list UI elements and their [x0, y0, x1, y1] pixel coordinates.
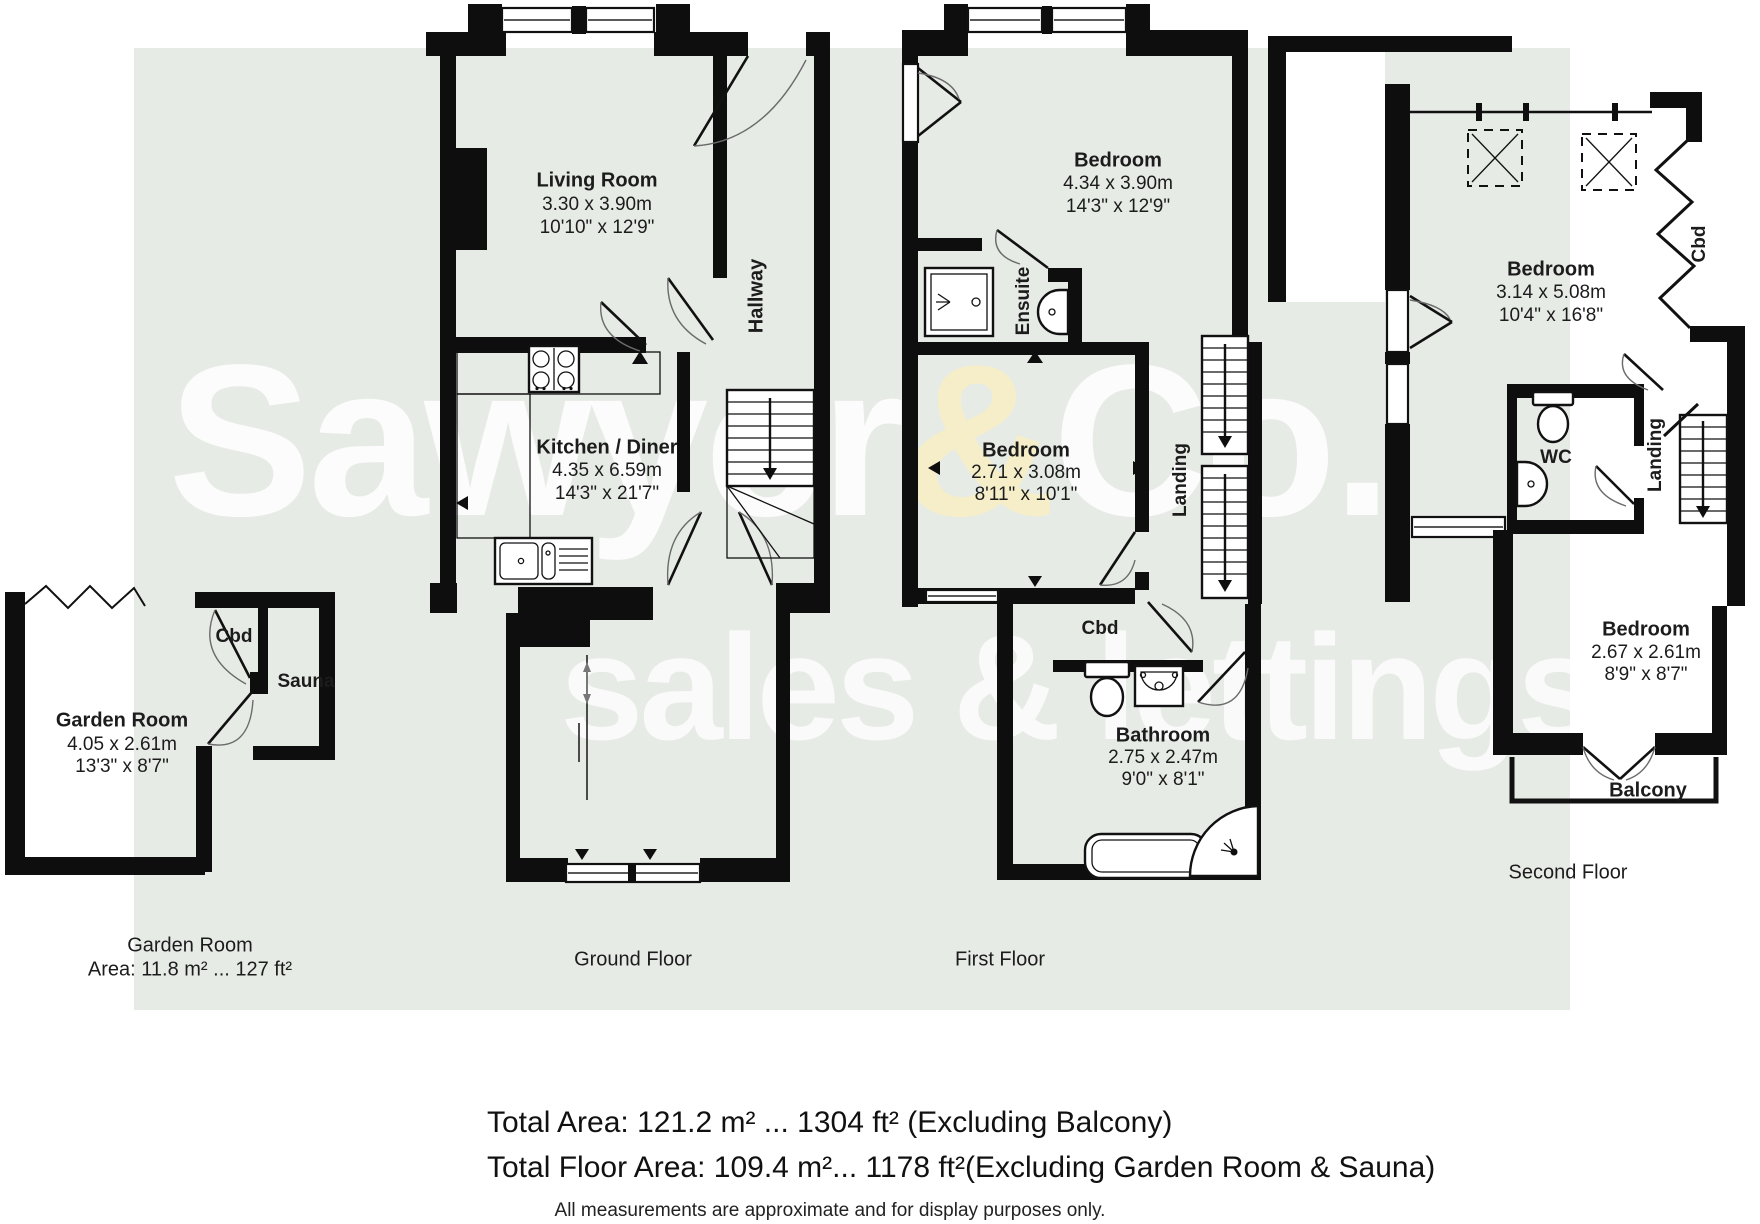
room-label-living-room: Living Room [536, 170, 657, 193]
gf-stairs [727, 390, 814, 558]
skylight-icon [1468, 130, 1522, 186]
room-dim-living-imperial: 10'10" x 12'9" [540, 217, 655, 239]
room-label-gr-cbd: Cbd [216, 626, 253, 648]
ff-stairs-lower [1202, 466, 1248, 598]
room-label-sf-cbd: Cbd [1689, 226, 1711, 263]
room-label-bedroom3: Bedroom [1507, 259, 1595, 282]
skylight-icon [1582, 134, 1636, 190]
room-label-bedroom1: Bedroom [1074, 150, 1162, 173]
second-floor-plan [1268, 36, 1745, 801]
ff-corner-shower-icon [1190, 806, 1258, 876]
ff-stairs-upper [1202, 336, 1248, 454]
sf-toilet-icon [1533, 392, 1573, 442]
caption-second-floor: Second Floor [1509, 862, 1628, 885]
total-area-text: Total Area: 121.2 m² ... 1304 ft² (Exclu… [487, 1106, 1172, 1140]
room-label-bedroom2: Bedroom [982, 440, 1070, 463]
room-dim-garden-imperial: 13'3" x 8'7" [75, 756, 169, 778]
gf-sink-icon [495, 538, 592, 584]
room-dim-bedroom2-imperial: 8'11" x 10'1" [975, 484, 1078, 506]
sf-stairs [1664, 404, 1727, 523]
room-label-kitchen-diner: Kitchen / Diner [536, 437, 677, 460]
room-dim-garden-metric: 4.05 x 2.61m [67, 734, 177, 756]
room-label-ff-cbd: Cbd [1082, 618, 1119, 640]
caption-garden-room-area: Area: 11.8 m² ... 127 ft² [88, 959, 292, 982]
ff-ensuite-sink-icon [1038, 290, 1068, 334]
total-floor-area-text: Total Floor Area: 109.4 m²... 1178 ft²(E… [487, 1151, 1435, 1185]
room-label-wc: WC [1540, 447, 1572, 469]
floorplan-page: Sawyer&Co. sales & lettings [0, 0, 1760, 1224]
room-label-garden-room: Garden Room [56, 710, 188, 733]
room-label-hallway: Hallway [746, 259, 769, 333]
room-label-ensuite: Ensuite [1013, 267, 1035, 336]
room-dim-bedroom3-metric: 3.14 x 5.08m [1496, 282, 1606, 304]
room-label-balcony: Balcony [1609, 780, 1687, 803]
room-dim-bathroom-imperial: 9'0" x 8'1" [1121, 769, 1204, 791]
room-label-sauna: Sauna [277, 671, 334, 693]
caption-garden-room: Garden Room [127, 935, 253, 958]
room-dim-bathroom-metric: 2.75 x 2.47m [1108, 747, 1218, 769]
ff-bathroom-sink-icon [1135, 666, 1183, 706]
room-dim-living-metric: 3.30 x 3.90m [542, 194, 652, 216]
room-label-sf-landing: Landing [1645, 418, 1667, 492]
floorplan-graphics [0, 0, 1760, 1224]
caption-ground-floor: Ground Floor [574, 949, 692, 972]
room-dim-bedroom2-metric: 2.71 x 3.08m [971, 462, 1081, 484]
room-label-bathroom: Bathroom [1116, 725, 1210, 748]
room-dim-bedroom3-imperial: 10'4" x 16'8" [1499, 305, 1603, 327]
room-label-ff-landing: Landing [1170, 443, 1192, 517]
ff-toilet-icon [1085, 662, 1129, 716]
room-dim-bedroom1-imperial: 14'3" x 12'9" [1066, 196, 1170, 218]
ff-bath-icon [1085, 834, 1207, 878]
room-label-bedroom4: Bedroom [1602, 619, 1690, 642]
disclaimer-text: All measurements are approximate and for… [555, 1200, 1106, 1222]
ff-shower-icon [925, 268, 993, 336]
caption-first-floor: First Floor [955, 949, 1045, 972]
room-dim-bedroom4-metric: 2.67 x 2.61m [1591, 642, 1701, 664]
room-dim-kitchen-imperial: 14'3" x 21'7" [555, 483, 659, 505]
room-dim-bedroom4-imperial: 8'9" x 8'7" [1604, 664, 1687, 686]
room-dim-bedroom1-metric: 4.34 x 3.90m [1063, 173, 1173, 195]
room-dim-kitchen-metric: 4.35 x 6.59m [552, 460, 662, 482]
